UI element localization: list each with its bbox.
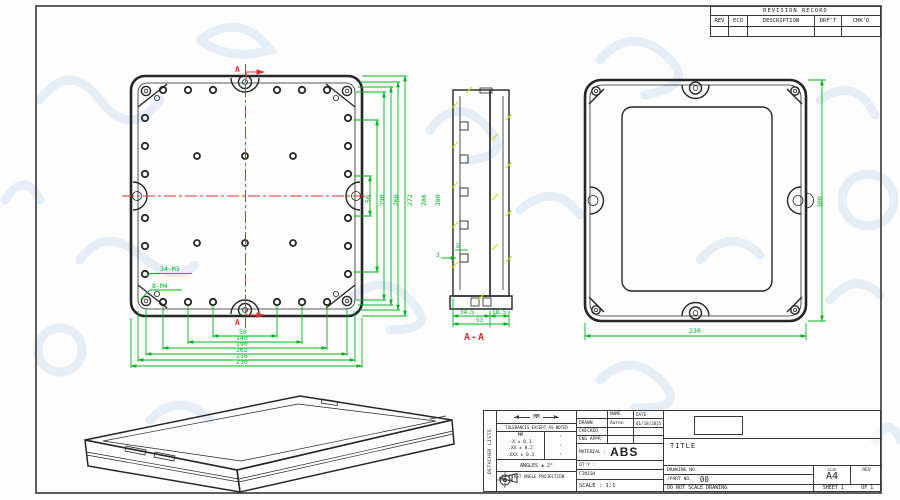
description-column-header: DESCRIPTION bbox=[748, 16, 815, 26]
angles-note: ANGLES ± 2° bbox=[497, 460, 576, 472]
drawing-sheet: { "colors": { "line": "#262626", "dimens… bbox=[0, 0, 900, 500]
checked-row: CHECKED bbox=[577, 428, 663, 436]
height-dimension: 300 bbox=[808, 80, 826, 321]
svg-text:53: 53 bbox=[476, 317, 484, 324]
isometric-view bbox=[85, 396, 454, 492]
finish-row: FINISH bbox=[577, 470, 663, 480]
drawn-label: DRAWN bbox=[577, 419, 608, 427]
material-row: MATERIAL : ABS bbox=[577, 444, 663, 461]
eng-appr-row: ENG APPR bbox=[577, 436, 663, 444]
back-view: 230 300 bbox=[585, 80, 826, 340]
checked-label: CHECKED bbox=[577, 428, 608, 435]
eng-appr-label: ENG APPR bbox=[577, 436, 608, 443]
finish-label: FINISH bbox=[577, 470, 663, 479]
title-block: DETACHED LISTS MM TOLERANCES EXCEPT AS N… bbox=[483, 410, 881, 492]
thread-label-m3: 34-M3 bbox=[160, 265, 180, 273]
section-label: A-A bbox=[464, 332, 485, 343]
approval-material-block: NAME DATE DRAWN Aaron 01/18/2015 CHECKED… bbox=[577, 411, 664, 491]
arrow-left-icon bbox=[514, 417, 530, 418]
size-cell: SIZE A4 bbox=[814, 466, 851, 484]
qty-label: QT'Y : bbox=[577, 461, 663, 469]
part-no-value: 00 bbox=[700, 475, 709, 484]
material-label: MATERIAL : bbox=[579, 450, 606, 455]
drawing-no-label: DRAWING NO. bbox=[664, 466, 813, 475]
rib-dimensions: 5 3 bbox=[436, 243, 468, 259]
svg-text:286: 286 bbox=[420, 194, 428, 206]
svg-text:272: 272 bbox=[406, 194, 414, 206]
section-width-dimensions: 34.5 18.5 53 bbox=[453, 298, 509, 327]
top-view: A A 34-M3 8-M4 50 140 bbox=[122, 64, 442, 368]
title-block-side-strip: DETACHED LISTS bbox=[484, 411, 497, 491]
revision-table-header-row: REV ECO DESCRIPTION DRF'T CHK'D bbox=[711, 16, 880, 27]
width-dimension: 230 bbox=[585, 323, 806, 340]
bottom-row: DO NOT SCALE DRAWING SHEET 1 OF 1 bbox=[664, 484, 882, 491]
name-date-header-row: NAME DATE bbox=[577, 411, 663, 419]
section-letter-top: A bbox=[235, 65, 240, 74]
svg-text:230: 230 bbox=[689, 327, 701, 335]
tol-unit-header: MM bbox=[518, 433, 524, 438]
drft-column-header: DRF'T bbox=[815, 16, 842, 26]
drawn-row: DRAWN Aaron 01/18/2015 bbox=[577, 419, 663, 428]
scale-row: SCALE : 1:1 bbox=[577, 480, 663, 491]
svg-text:50: 50 bbox=[364, 195, 372, 203]
tolerance-note: TOLERANCES EXCEPT AS NOTED bbox=[497, 424, 576, 432]
title-label: TITLE bbox=[664, 438, 882, 466]
svg-text:190: 190 bbox=[378, 194, 386, 206]
lid-recess bbox=[622, 107, 772, 291]
logo-box bbox=[694, 416, 743, 435]
svg-text:260: 260 bbox=[392, 194, 400, 206]
part-no-label: /PART NO. bbox=[667, 477, 692, 482]
arrow-right-icon bbox=[543, 417, 559, 418]
material-value: ABS bbox=[610, 445, 638, 459]
svg-text:18.5: 18.5 bbox=[492, 309, 507, 316]
thread-label-m4: 8-M4 bbox=[152, 282, 168, 290]
height-dimensions: 50 190 260 272 286 300 bbox=[354, 76, 442, 316]
do-not-scale-note: DO NOT SCALE DRAWING bbox=[664, 485, 814, 491]
svg-text:230: 230 bbox=[236, 358, 248, 366]
name-header: NAME bbox=[608, 411, 634, 418]
section-view: 5 3 34.5 18.5 53 A-A bbox=[436, 87, 512, 343]
svg-text:34.5: 34.5 bbox=[460, 309, 475, 316]
units-row: MM bbox=[497, 411, 576, 424]
qty-row: QT'Y : bbox=[577, 461, 663, 470]
internal-ribs bbox=[460, 122, 468, 262]
revision-table-empty-row bbox=[711, 27, 880, 36]
size-value: A4 bbox=[826, 472, 838, 482]
svg-text:5: 5 bbox=[456, 243, 460, 250]
rev-cell: REV bbox=[851, 466, 882, 484]
sheet-info: SHEET 1 bbox=[823, 485, 844, 491]
tolerance-block: MM TOLERANCES EXCEPT AS NOTED MM .X ± 0.… bbox=[497, 411, 577, 491]
of-info: OF 1 bbox=[861, 485, 873, 491]
revision-record-table: REVISION RECORD REV ECO DESCRIPTION DRF'… bbox=[710, 6, 881, 37]
tolerance-table: MM .X ± 0.3 .XX ± 0.2 .XXX ± 0.1 · · · bbox=[497, 432, 576, 460]
drawing-no-cell: DRAWING NO. /PART NO. 00 bbox=[664, 466, 814, 484]
scale-label: SCALE : 1:1 bbox=[577, 480, 663, 491]
svg-text:300: 300 bbox=[816, 196, 824, 208]
drawn-name: Aaron bbox=[608, 419, 634, 427]
revision-table-title: REVISION RECORD bbox=[711, 7, 880, 16]
target-projection-icon bbox=[497, 472, 513, 488]
units-label: MM bbox=[533, 414, 539, 420]
drawn-date: 01/18/2015 bbox=[634, 419, 663, 427]
projection-row: FIRST ANGLE PROJECTION bbox=[497, 472, 576, 491]
eco-column-header: ECO bbox=[729, 16, 748, 26]
title-drawing-block: TITLE DRAWING NO. /PART NO. 00 SIZE A4 R… bbox=[664, 411, 882, 491]
chkd-column-header: CHK'D bbox=[842, 16, 880, 26]
section-letter-bottom: A bbox=[235, 318, 240, 327]
svg-text:300: 300 bbox=[434, 194, 442, 206]
date-header: DATE bbox=[634, 411, 663, 418]
rev-column-header: REV bbox=[711, 16, 729, 26]
svg-text:3: 3 bbox=[436, 252, 440, 259]
corner-gussets bbox=[589, 87, 802, 314]
